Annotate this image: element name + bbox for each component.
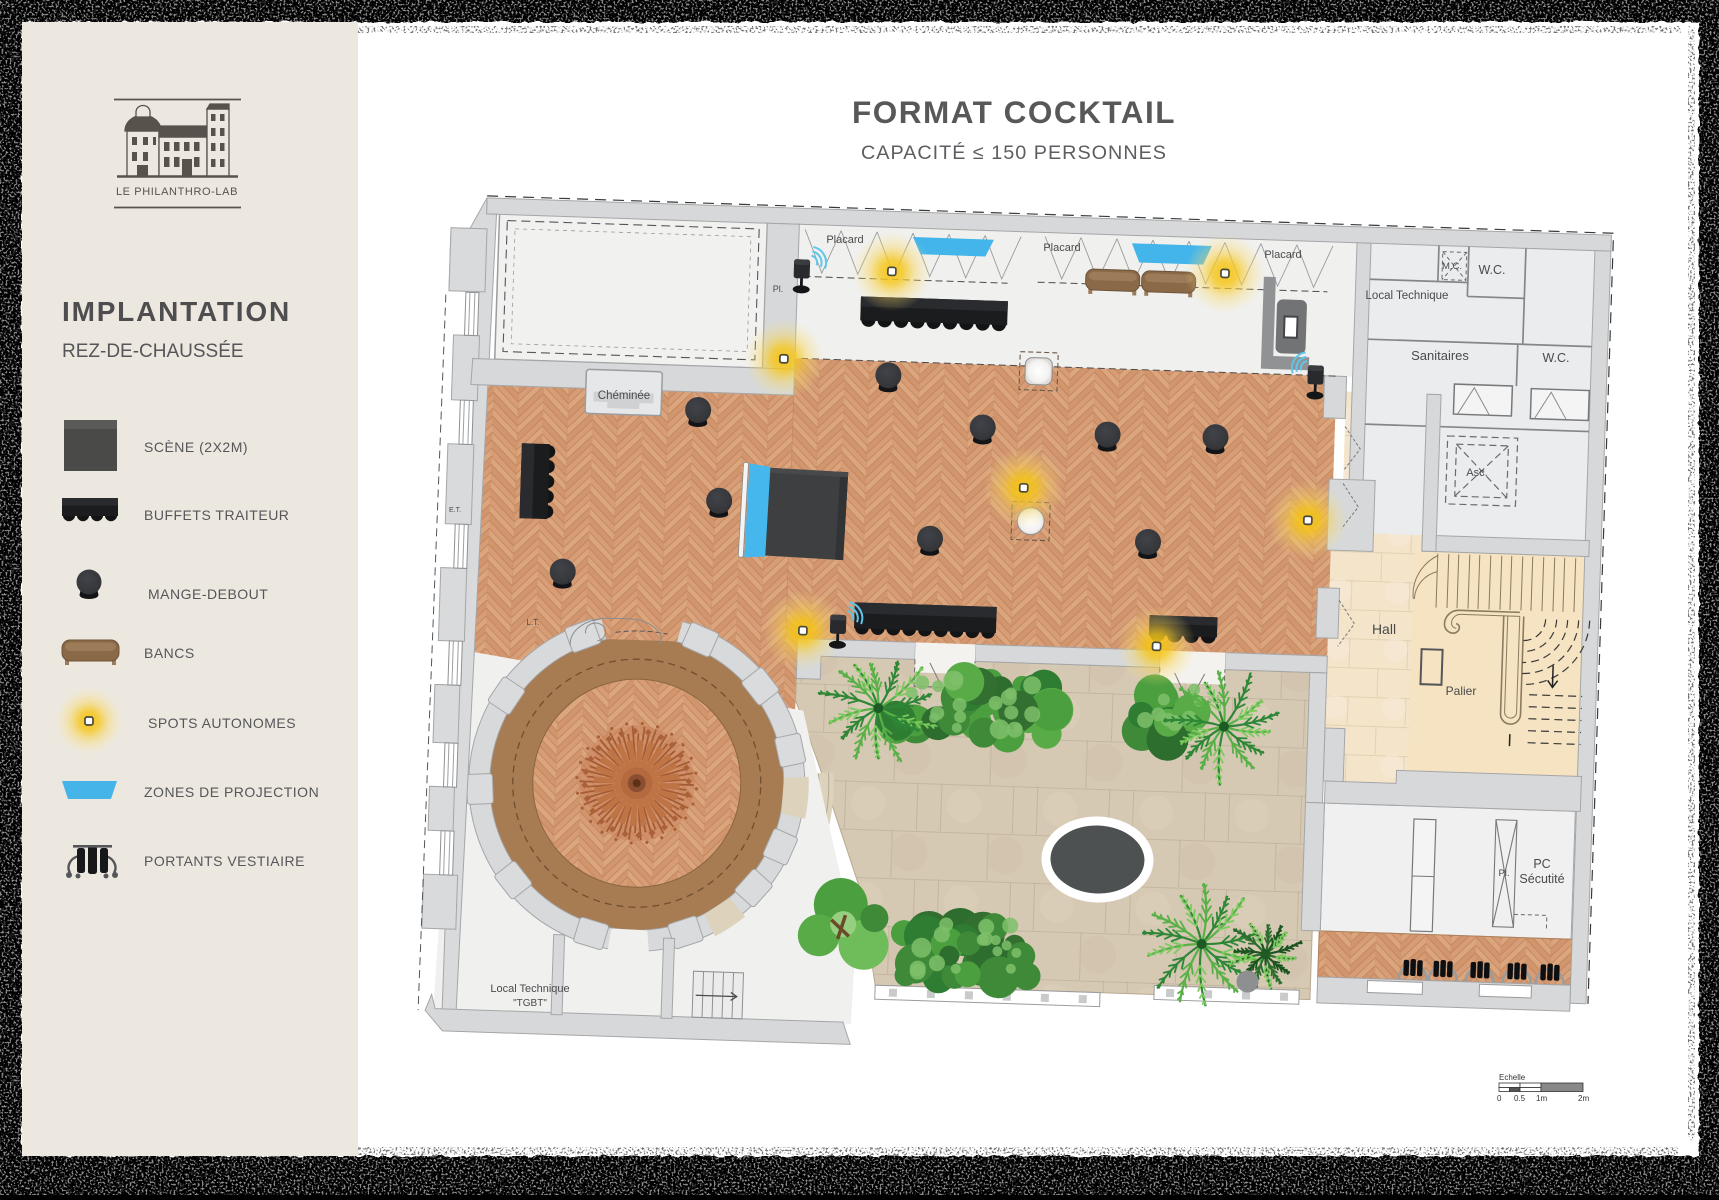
svg-text:Sanitaires: Sanitaires bbox=[1411, 348, 1469, 363]
svg-text:BUFFETS TRAITEUR: BUFFETS TRAITEUR bbox=[144, 507, 289, 523]
svg-text:Chéminée: Chéminée bbox=[598, 390, 650, 402]
svg-text:Hall: Hall bbox=[1372, 621, 1396, 637]
svg-text:BANCS: BANCS bbox=[144, 645, 195, 661]
svg-text:REZ-DE-CHAUSSÉE: REZ-DE-CHAUSSÉE bbox=[62, 341, 244, 362]
svg-text:Placard: Placard bbox=[826, 234, 863, 246]
svg-text:Pl.: Pl. bbox=[773, 284, 784, 294]
svg-text:PORTANTS VESTIAIRE: PORTANTS VESTIAIRE bbox=[144, 853, 305, 869]
svg-text:M.C.: M.C. bbox=[1442, 261, 1462, 272]
svg-text:SCÈNE (2X2M): SCÈNE (2X2M) bbox=[144, 439, 248, 455]
svg-text:"TGBT": "TGBT" bbox=[513, 998, 547, 1009]
svg-text:Echelle: Echelle bbox=[1499, 1073, 1526, 1082]
svg-text:SPOTS AUTONOMES: SPOTS AUTONOMES bbox=[148, 715, 296, 731]
svg-text:W.C.: W.C. bbox=[1542, 351, 1569, 365]
svg-text:CAPACITÉ ≤ 150 PERSONNES: CAPACITÉ ≤ 150 PERSONNES bbox=[861, 141, 1167, 164]
svg-text:L.T.: L.T. bbox=[527, 618, 540, 627]
svg-text:1m: 1m bbox=[1536, 1094, 1547, 1103]
svg-text:Pl.: Pl. bbox=[1498, 868, 1509, 879]
svg-text:0.5: 0.5 bbox=[1514, 1094, 1526, 1103]
svg-text:FORMAT COCKTAIL: FORMAT COCKTAIL bbox=[852, 94, 1176, 130]
svg-text:Asc.: Asc. bbox=[1466, 467, 1487, 479]
svg-text:IMPLANTATION: IMPLANTATION bbox=[62, 296, 291, 327]
svg-text:Palier: Palier bbox=[1446, 684, 1477, 698]
svg-text:MANGE-DEBOUT: MANGE-DEBOUT bbox=[148, 586, 268, 602]
svg-text:Local Technique: Local Technique bbox=[1366, 290, 1449, 302]
svg-text:W.C.: W.C. bbox=[1478, 263, 1505, 277]
svg-text:ZONES DE PROJECTION: ZONES DE PROJECTION bbox=[144, 784, 319, 800]
svg-text:Sécutité: Sécutité bbox=[1519, 872, 1564, 886]
svg-text:2m: 2m bbox=[1578, 1094, 1589, 1103]
svg-text:LE PHILANTHRO-LAB: LE PHILANTHRO-LAB bbox=[116, 186, 238, 198]
svg-text:Placard: Placard bbox=[1264, 249, 1301, 261]
svg-text:Placard: Placard bbox=[1043, 242, 1080, 254]
svg-text:E.T.: E.T. bbox=[449, 507, 461, 514]
svg-text:PC: PC bbox=[1533, 857, 1550, 871]
svg-text:Local Technique: Local Technique bbox=[490, 983, 569, 995]
svg-text:0: 0 bbox=[1497, 1094, 1502, 1103]
